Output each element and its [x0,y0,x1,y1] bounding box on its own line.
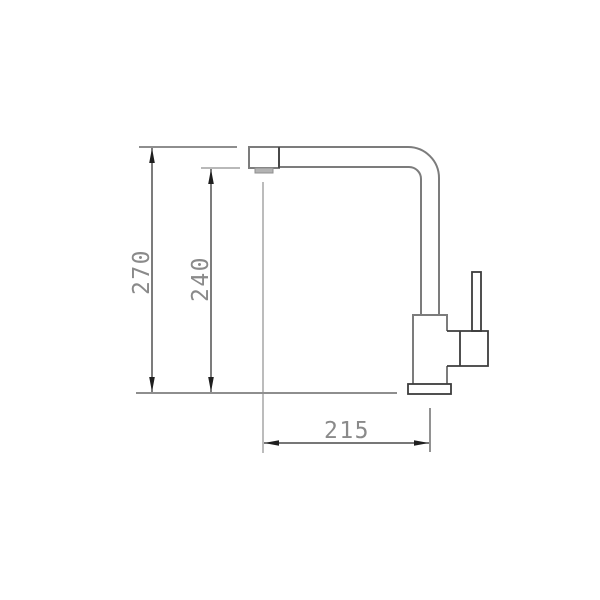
extension-lines [136,147,430,453]
spout-head [249,147,279,168]
spout-inner-edge [279,167,421,315]
faucet-body [413,315,447,384]
arrowhead-right-icon [414,440,429,446]
aerator [255,168,273,173]
faucet-technical-drawing: 270 240 215 [0,0,600,600]
handle-lever [472,272,481,331]
dimension-270-label: 270 [129,249,155,295]
arrowhead-down-icon [149,377,155,392]
arrowhead-down-icon [208,377,214,392]
faucet-outline [249,147,447,384]
drawing-canvas: 270 240 215 [0,0,600,600]
dimension-215-label: 215 [324,418,370,444]
dimension-spout-height: 240 [188,169,214,392]
dimension-spout-reach: 215 [264,418,429,446]
dimension-overall-height: 270 [129,148,155,392]
base-plate [408,384,451,394]
spout-outer-edge [249,147,439,315]
arrowhead-left-icon [264,440,279,446]
handle-housing [447,331,488,366]
dimension-240-label: 240 [188,256,214,302]
arrowhead-up-icon [208,169,214,184]
arrowhead-up-icon [149,148,155,163]
